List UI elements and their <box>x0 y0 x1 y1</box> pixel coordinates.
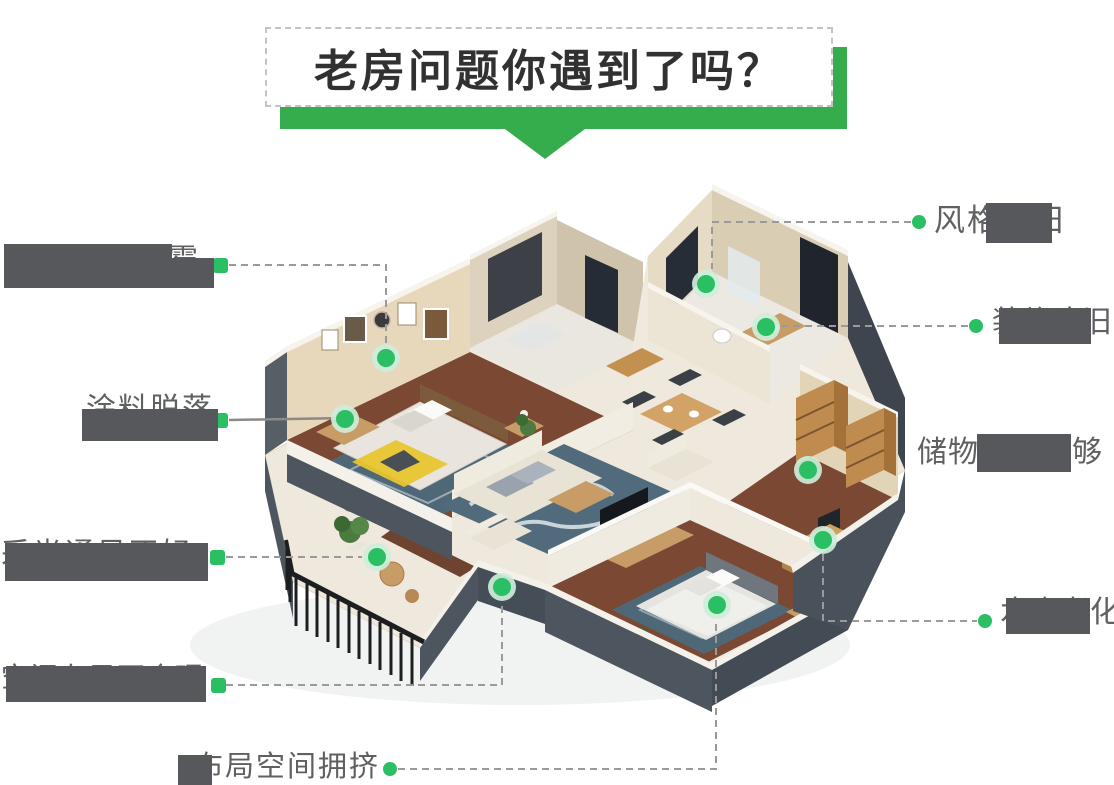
hotspot-study-bookshelf[interactable] <box>794 456 822 484</box>
page-title: 老房问题你遇到了吗？ <box>314 35 784 99</box>
hotspot-shower-room[interactable] <box>692 270 720 298</box>
hotspot-master-bedroom-wall[interactable] <box>372 344 400 372</box>
anchor-dot-decor <box>969 319 983 333</box>
redaction-block <box>168 258 214 288</box>
redaction-block <box>977 434 1071 472</box>
toilet <box>713 329 731 343</box>
redaction-block <box>986 203 1052 243</box>
redaction-block <box>178 755 212 785</box>
hotspot-balcony[interactable] <box>363 543 391 571</box>
anchor-square-wall-mold <box>213 258 228 273</box>
infographic-canvas: 老房问题你遇到了吗？ 墙面开裂发霉 涂料脱落 采光通风不好 空间布局不合理 布局… <box>0 0 1114 785</box>
redaction-block <box>6 666 206 702</box>
hotspot-second-bedroom-bed[interactable] <box>703 591 731 619</box>
anchor-dot-style <box>912 215 926 229</box>
redaction-block <box>1006 598 1090 634</box>
redaction-block <box>4 244 172 288</box>
redaction-block <box>999 308 1091 344</box>
anchor-square-layout <box>211 678 226 693</box>
anchor-square-lighting <box>210 550 225 565</box>
label-crowded-space: 布局空间拥挤 <box>194 752 380 784</box>
hotspot-living-room-edge[interactable] <box>488 573 516 601</box>
hotspot-master-bedroom-bench[interactable] <box>331 405 359 433</box>
anchor-dot-plumbing <box>978 614 992 628</box>
anchor-dot-crowded <box>383 762 397 776</box>
hotspot-study-desk[interactable] <box>809 526 837 554</box>
title-ribbon-arrow <box>505 129 585 159</box>
hotspot-bathroom[interactable] <box>752 313 780 341</box>
title-box: 老房问题你遇到了吗？ <box>265 27 833 107</box>
balcony-stool <box>405 589 419 603</box>
redaction-block <box>82 409 218 441</box>
redaction-block <box>5 543 208 581</box>
